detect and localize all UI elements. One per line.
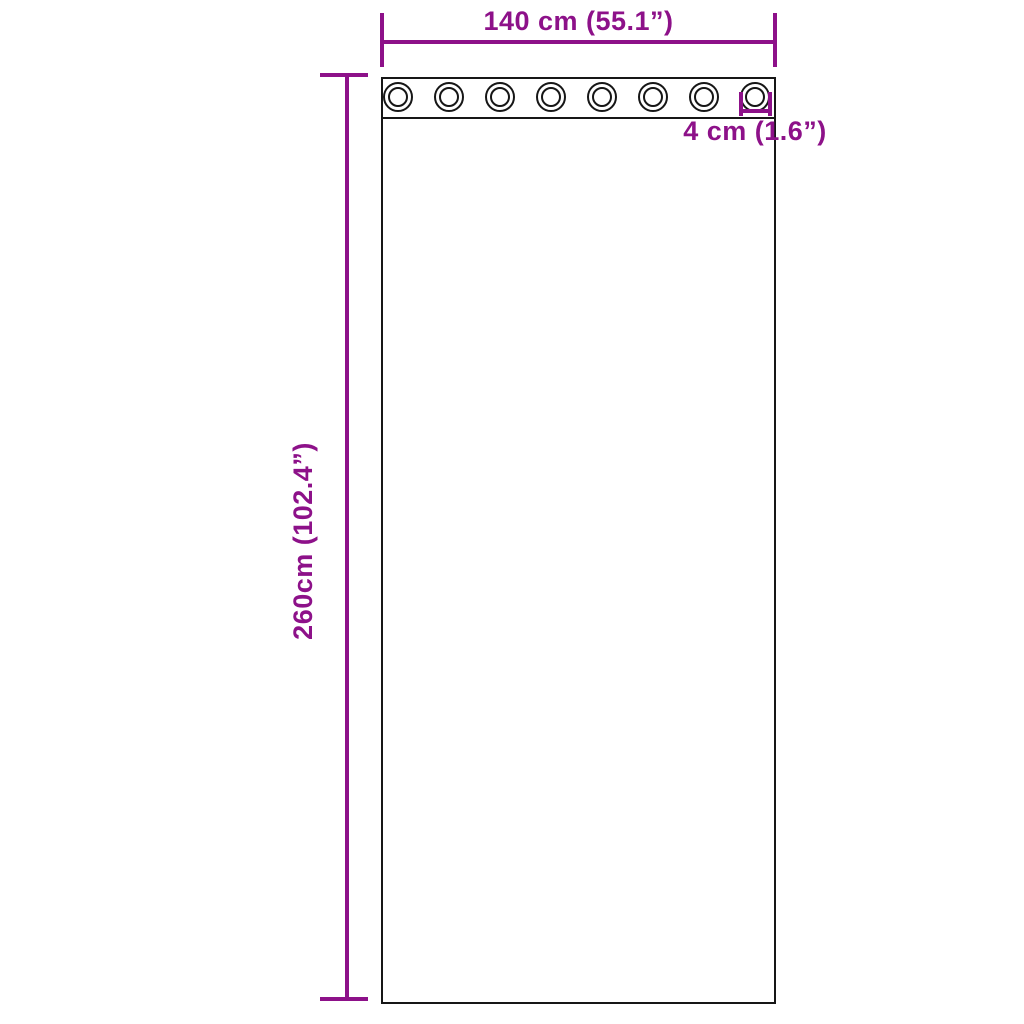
height-dimension-label: 260cm (102.4”) — [289, 442, 319, 640]
grommet-icon — [638, 82, 668, 112]
grommet-inner-ring — [745, 87, 765, 107]
grommet-icon — [485, 82, 515, 112]
grommet-icon — [434, 82, 464, 112]
width-dimension-line — [380, 40, 777, 44]
grommet-dimension-label: 4 cm (1.6”) — [683, 117, 827, 147]
curtain-dimension-diagram: 140 cm (55.1”) 260cm (102.4”) 4 cm (1.6”… — [0, 0, 1024, 1024]
grommet-dimension-line — [739, 109, 772, 113]
curtain-panel-outline — [381, 77, 776, 1004]
grommet-inner-ring — [490, 87, 510, 107]
grommet-inner-ring — [388, 87, 408, 107]
grommet-icon — [536, 82, 566, 112]
grommet-inner-ring — [439, 87, 459, 107]
grommet-inner-ring — [694, 87, 714, 107]
grommet-inner-ring — [592, 87, 612, 107]
grommet-icon — [587, 82, 617, 112]
height-dimension-tick-bottom — [320, 997, 368, 1001]
grommet-icon — [689, 82, 719, 112]
grommet-inner-ring — [541, 87, 561, 107]
grommet-icon — [740, 82, 770, 112]
height-dimension-line — [345, 73, 349, 1001]
width-dimension-label: 140 cm (55.1”) — [381, 7, 776, 37]
grommet-row — [383, 82, 775, 112]
grommet-inner-ring — [643, 87, 663, 107]
grommet-icon — [383, 82, 413, 112]
height-dimension-tick-top — [320, 73, 368, 77]
